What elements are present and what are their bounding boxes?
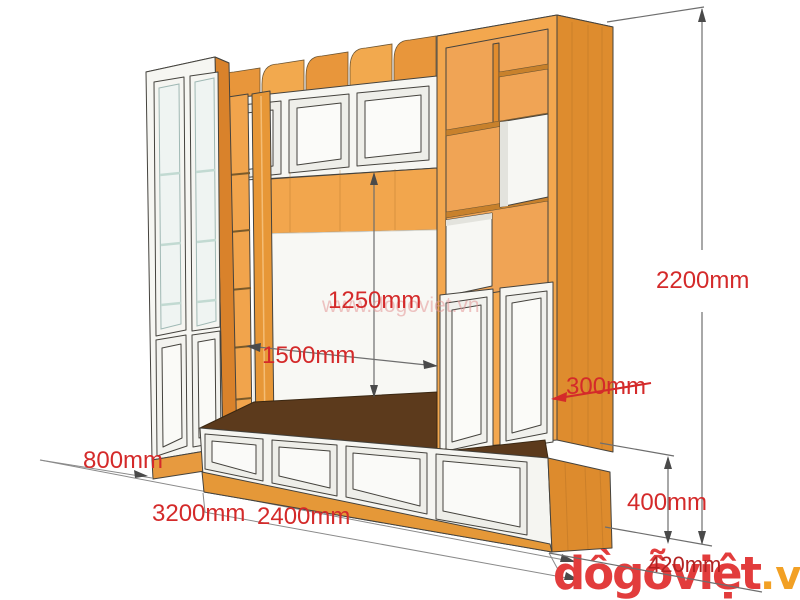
dim-overall-width: 3200mm bbox=[152, 500, 245, 527]
niche-back-panel bbox=[254, 230, 437, 410]
glass-door bbox=[154, 77, 186, 336]
dim-bench-depth: 420mm bbox=[648, 552, 721, 577]
solid-door bbox=[156, 335, 187, 456]
dim-niche-height: 1250mm bbox=[328, 287, 421, 314]
white-open-compartment bbox=[446, 213, 492, 296]
furniture-diagram-canvas: dồgỗviệt.vn www.dogoviet.vn 1250mm 1500m… bbox=[0, 0, 800, 600]
bookcase-lower-door bbox=[500, 282, 553, 450]
niche-top-wood-panel bbox=[254, 168, 437, 234]
brand-logo-tld: .vn bbox=[760, 553, 800, 599]
dim-niche-width: 1500mm bbox=[262, 342, 355, 369]
left-display-cabinet bbox=[146, 57, 237, 479]
glass-door bbox=[190, 72, 220, 331]
white-display-box bbox=[500, 114, 548, 207]
dim-bench-height: 400mm bbox=[627, 489, 707, 516]
dim-top-depth: 300mm bbox=[566, 373, 646, 400]
top-cabinet-door bbox=[289, 94, 349, 173]
niche-left-upright bbox=[252, 91, 274, 436]
tv-wall-unit-drawing: dồgỗviệt.vn www.dogoviet.vn 1250mm 1500m… bbox=[0, 0, 800, 600]
bench-side-panel bbox=[548, 458, 612, 552]
top-cabinet-door bbox=[357, 86, 429, 166]
dim-side-depth: 800mm bbox=[83, 447, 163, 474]
dim-overall-height: 2200mm bbox=[656, 267, 749, 294]
dim-bench-width: 2400mm bbox=[257, 503, 350, 530]
